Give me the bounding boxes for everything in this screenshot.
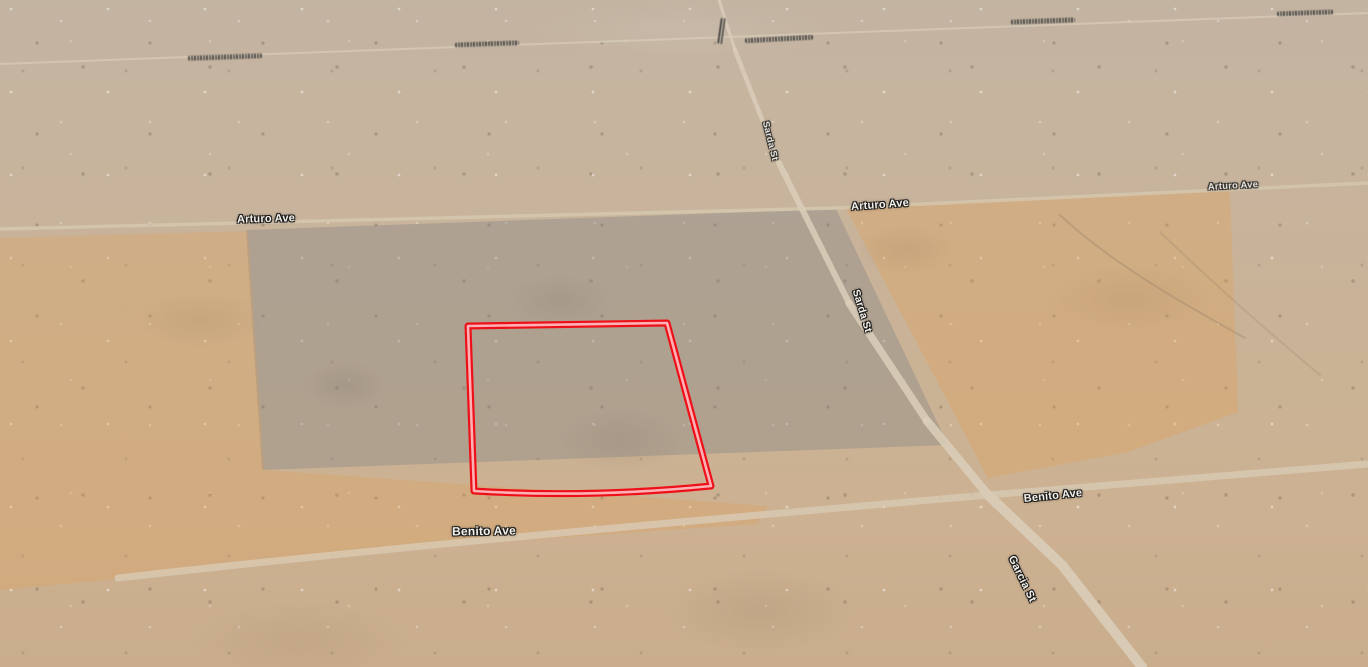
road-sarda-st	[735, 50, 779, 163]
road-garcia-st	[988, 495, 1142, 667]
road-label-garcia-st: Garcia St	[1006, 554, 1039, 604]
road-top-distant	[0, 13, 1368, 64]
road-label-sarda-st-upper: Sarda St	[760, 120, 780, 162]
satellite-map-view[interactable]: Arturo Ave Sarda St Arturo Ave Arturo Av…	[0, 0, 1368, 667]
distant-road-label-blur	[745, 35, 813, 44]
road-label-benito-ave-right: Benito Ave	[1023, 487, 1083, 505]
road-label-arturo-ave-left: Arturo Ave	[237, 212, 295, 226]
distant-road-label-blur	[1011, 17, 1075, 24]
road-sarda-st	[719, 0, 735, 50]
distant-road-label-blur	[1277, 10, 1333, 17]
distant-road-label-blur	[455, 40, 519, 47]
distant-road-label-blur	[188, 53, 262, 61]
distant-road-label-blur	[717, 18, 727, 45]
